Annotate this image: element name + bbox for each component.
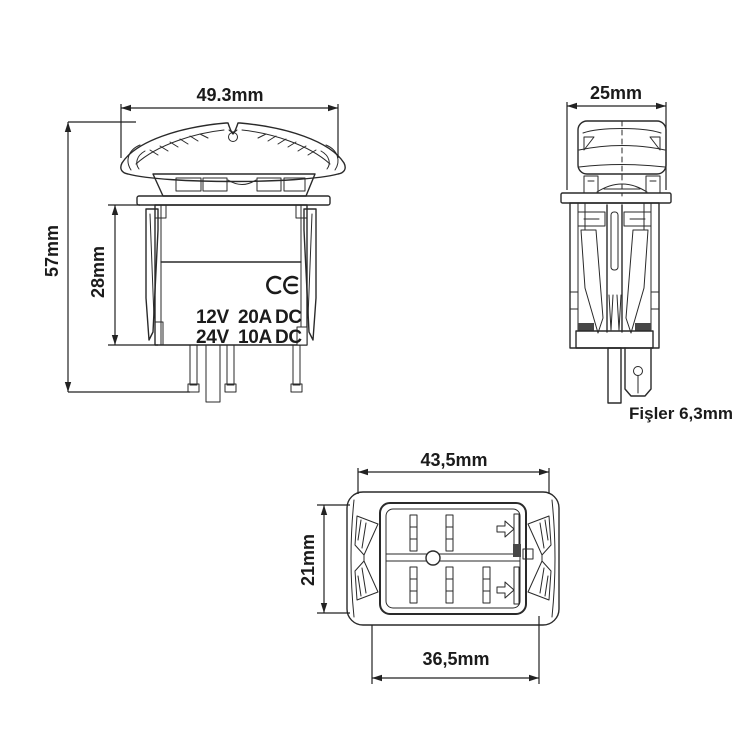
mounting-flange: [137, 196, 330, 205]
rocker-cap-side: [578, 121, 666, 196]
latch-square: [523, 549, 533, 559]
flange-edge-curve-right: [552, 500, 555, 617]
rating-current-1: 20A: [238, 307, 273, 328]
rocker-cap-inner-curve-right: [242, 130, 330, 164]
terminal-blade-side: [608, 348, 651, 403]
snap-clip-right: [304, 209, 316, 340]
snap-clip-left: [146, 209, 158, 340]
body-height-label: 28mm: [88, 246, 108, 298]
rocker-notch-detail: [229, 130, 238, 142]
front-view: 12V 20A DC 24V 10A DC 49.3mm: [42, 85, 345, 402]
ce-mark-icon: [267, 277, 297, 293]
switch-drawing: 12V 20A DC 24V 10A DC 49.3mm: [0, 0, 750, 750]
actuator-housing: [153, 174, 315, 196]
dim-total-height: 57mm: [42, 122, 190, 392]
bottom-height-label: 21mm: [298, 534, 318, 586]
spring-clip-left: [355, 516, 378, 600]
side-width-label: 25mm: [590, 83, 642, 103]
bottom-inner-width-label: 36,5mm: [422, 649, 489, 669]
dim-front-width: 49.3mm: [121, 85, 338, 158]
rating-voltage-1: 12V: [196, 307, 230, 328]
side-view: 25mm: [561, 83, 733, 423]
direction-arrow-top-icon: [497, 521, 514, 537]
dim-bottom-inner-width: 36,5mm: [372, 616, 539, 684]
technical-drawing-page: 12V 20A DC 24V 10A DC 49.3mm: [0, 0, 750, 750]
terminal-size-label: Fişler 6,3mm: [629, 404, 733, 423]
rating-type-1: DC: [275, 307, 302, 328]
bottom-outer-width-label: 43,5mm: [420, 450, 487, 470]
switch-body-side: [570, 203, 659, 348]
body-bottom-step: [155, 322, 163, 345]
pivot-circle: [426, 551, 440, 565]
latch-block: [513, 544, 521, 557]
rocker-cap-hatching: [150, 134, 316, 155]
flange-edge-curve-left: [351, 500, 354, 617]
terminal-pins: [188, 345, 302, 402]
front-width-label: 49.3mm: [196, 85, 263, 105]
total-height-label: 57mm: [42, 225, 62, 277]
divider-bar: [386, 554, 520, 561]
dim-bottom-outer-width: 43,5mm: [358, 450, 549, 494]
rating-text: 12V 20A DC 24V 10A DC: [196, 307, 302, 348]
bottom-view: 43,5mm 21mm 36,5mm: [298, 450, 559, 684]
dim-bottom-height: 21mm: [298, 505, 350, 613]
direction-arrow-bottom-icon: [497, 582, 514, 598]
terminal-slots-bottom: [410, 567, 519, 604]
rating-current-2: 10A: [238, 327, 273, 348]
rocker-cap-inner-curve-left: [136, 130, 224, 164]
spring-clip-right: [528, 516, 551, 600]
mounting-flange-side: [561, 193, 671, 203]
